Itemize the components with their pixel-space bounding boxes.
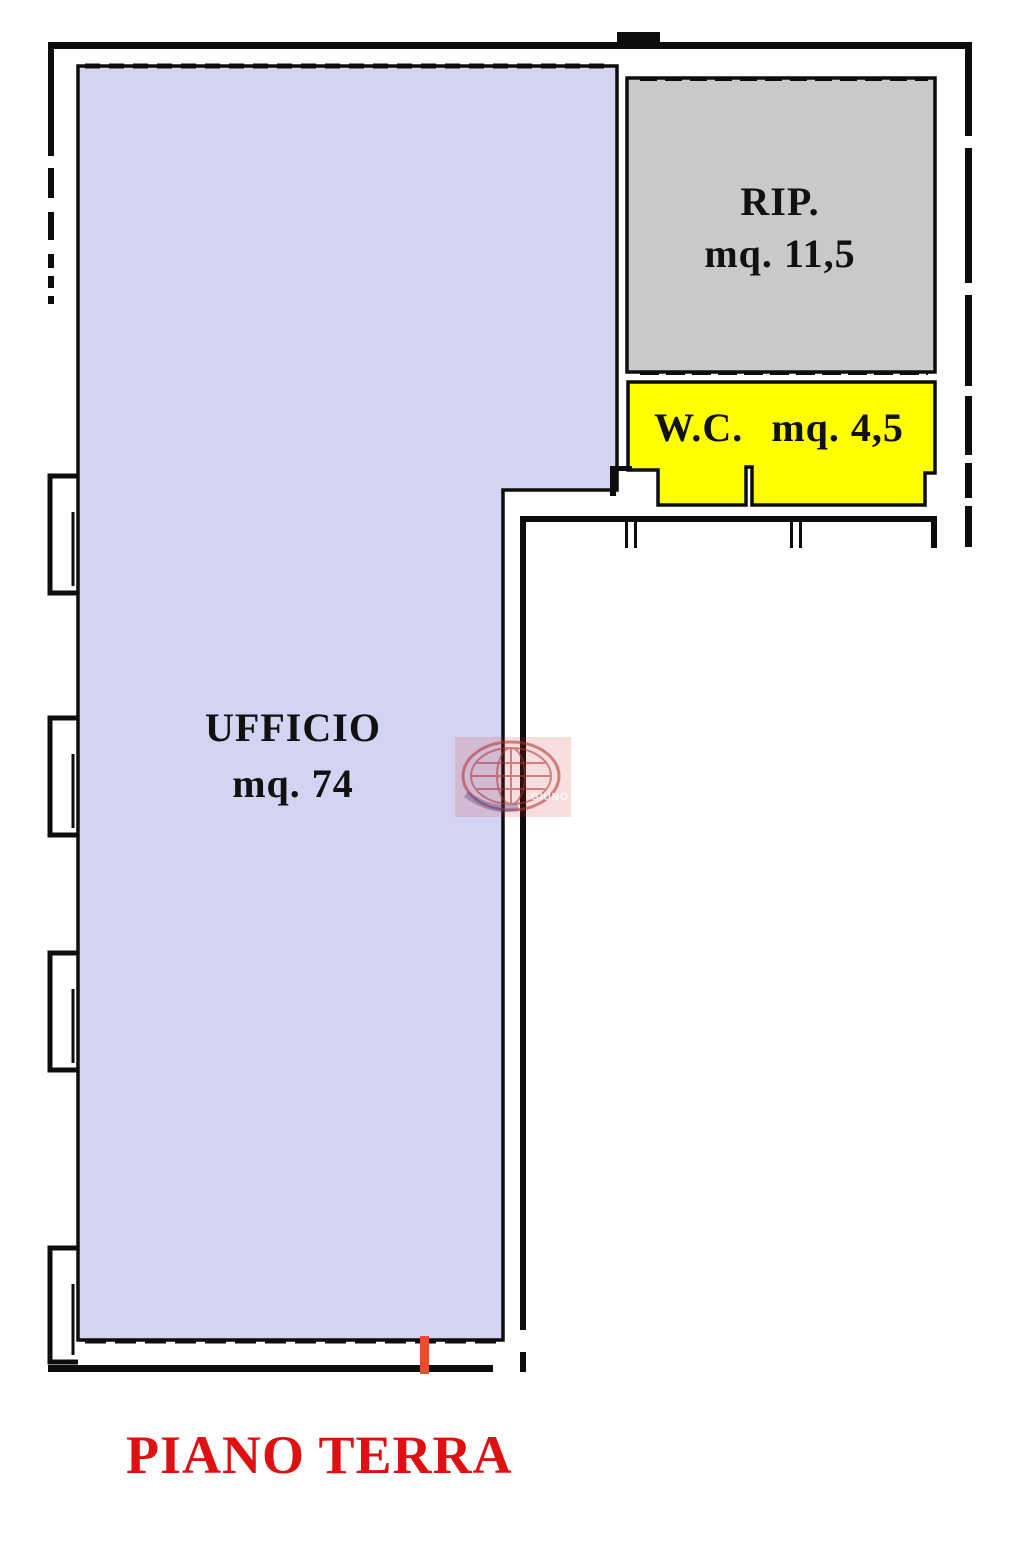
door-jamb (790, 516, 793, 548)
window-opening (46, 198, 56, 212)
wall-segment (617, 32, 660, 46)
wall-segment (48, 276, 54, 288)
door-jamb (625, 516, 628, 548)
room-area: mq. 74 (128, 756, 458, 812)
wall-segment (520, 516, 526, 1330)
window-opening (46, 240, 56, 254)
window-opening (963, 455, 974, 463)
window-opening (963, 283, 974, 295)
wall-segment (48, 42, 972, 49)
wall-segment (931, 516, 937, 548)
door-jamb (634, 516, 637, 548)
corridor-walls-group (520, 466, 937, 1372)
door-jamb (799, 516, 802, 548)
room-name: W.C. (654, 404, 743, 451)
window-opening (46, 156, 56, 168)
window-opening (963, 498, 974, 506)
room-name: RIP. (630, 176, 930, 228)
room-area: mq. 4,5 (771, 404, 904, 451)
wall-segment (520, 1352, 526, 1372)
wall-segment (520, 516, 937, 522)
window-bays-group (50, 476, 78, 1362)
room-name: UFFICIO (128, 700, 458, 756)
window-opening (963, 136, 974, 148)
room-area: mq. 11,5 (630, 228, 930, 280)
room-label-rip: RIP. mq. 11,5 (630, 176, 930, 280)
room-label-ufficio: UFFICIO mq. 74 (128, 700, 458, 812)
plan-title: PIANO TERRA (126, 1424, 513, 1486)
room-label-wc: W.C. mq. 4,5 (628, 404, 930, 451)
wall-segment (48, 42, 54, 268)
watermark-logo (455, 737, 571, 817)
wall-segment (610, 466, 632, 471)
window-opening (963, 386, 974, 396)
floor-plan: UFFICIO mq. 74 RIP. mq. 11,5 W.C. mq. 4,… (0, 0, 1024, 1545)
entrance-door-marker (420, 1336, 429, 1374)
watermark-label: GIUNO (531, 792, 569, 803)
wall-segment (48, 296, 54, 304)
